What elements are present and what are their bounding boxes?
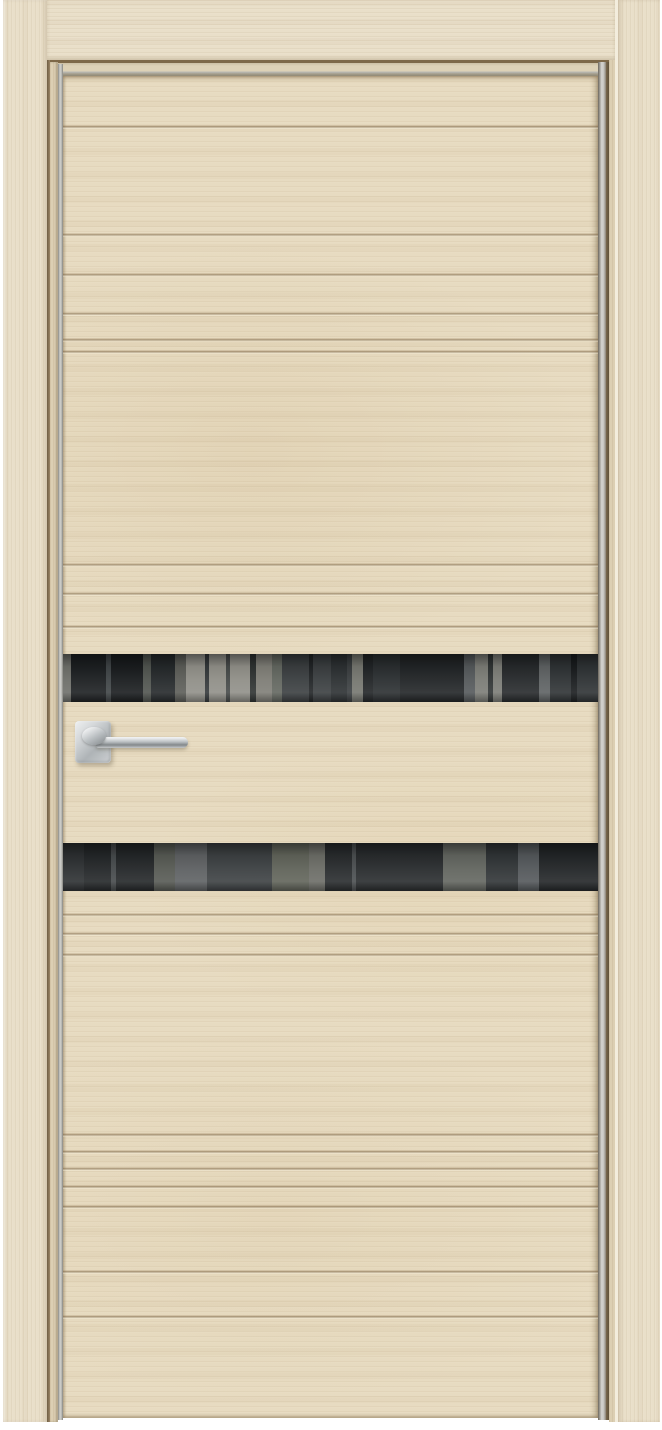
glass-insert-lower — [63, 843, 598, 891]
groove-line — [63, 1315, 598, 1319]
door-frame-right-casing — [618, 0, 660, 1422]
groove-line — [63, 1167, 598, 1171]
door-frame-left-casing — [3, 0, 47, 1422]
groove-line — [63, 125, 598, 129]
groove-line — [63, 273, 598, 277]
door-jamb-right — [609, 60, 615, 1422]
groove-line — [63, 1133, 598, 1137]
groove-line — [63, 1150, 598, 1154]
glass-gloss-overlay — [63, 654, 598, 702]
groove-line — [63, 563, 598, 567]
groove-line — [63, 932, 598, 936]
groove-line — [63, 592, 598, 596]
groove-line — [63, 913, 598, 917]
groove-line — [63, 338, 598, 342]
groove-line — [63, 1270, 598, 1274]
groove-line — [63, 350, 598, 354]
handle-lever — [96, 737, 188, 748]
groove-line — [63, 312, 598, 316]
frame-top-reveal — [50, 60, 615, 76]
groove-line — [63, 1185, 598, 1189]
glass-gloss-overlay — [63, 843, 598, 891]
door-gap-right — [598, 62, 606, 1420]
interior-door-product-photo — [0, 0, 662, 1430]
groove-line — [63, 1205, 598, 1209]
groove-line — [63, 233, 598, 237]
groove-line — [63, 953, 598, 957]
glass-insert-upper — [63, 654, 598, 702]
door-jamb-left — [50, 62, 58, 1422]
door-frame-head-casing — [47, 0, 615, 60]
handle-hub — [82, 727, 106, 745]
casing-inner-edge-highlight — [615, 0, 618, 1422]
groove-line — [63, 625, 598, 629]
